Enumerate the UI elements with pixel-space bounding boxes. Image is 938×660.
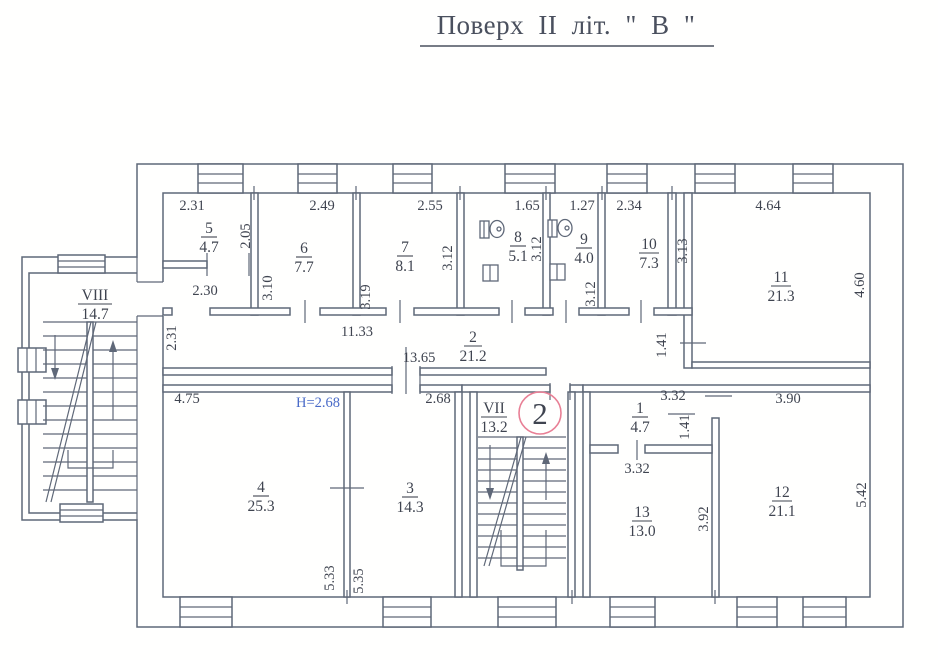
room10-area: 7.3 (639, 255, 659, 272)
room5-number: 5 (205, 220, 213, 237)
dim-room7-width: 2.55 (417, 198, 442, 214)
sink-icon-room8 (483, 265, 498, 281)
floor-plan-sheet: Поверх II літ. " В " (0, 0, 938, 660)
room-label-13: 13 13.0 (628, 504, 655, 540)
dim-corridor-width: 1.41 (654, 332, 670, 357)
sink-icon-room9 (550, 264, 565, 280)
room-label-12: 12 21.1 (768, 484, 795, 520)
stair-vii-area: 13.2 (480, 419, 507, 436)
room-label-corridor-2: 2 21.2 (459, 329, 486, 365)
dim-room13-width: 3.32 (624, 461, 649, 477)
dim-room4-depth: 5.33 (322, 565, 338, 590)
dim-room13-depth: 3.92 (696, 506, 712, 531)
room1-number: 1 (636, 400, 644, 417)
room10-number: 10 (641, 236, 657, 253)
room7-area: 8.1 (395, 258, 414, 275)
room-label-3: 3 14.3 (396, 480, 423, 516)
unit-marker-number: 2 (532, 396, 548, 431)
dim-room10-width: 2.34 (616, 198, 642, 214)
dim-room11-width: 4.64 (755, 198, 781, 214)
dim-lobby-width: 2.30 (192, 283, 217, 299)
room-label-9: 9 4.0 (574, 231, 594, 267)
dim-room3-depth: 5.35 (351, 568, 367, 593)
stairwell-vii (478, 437, 566, 570)
stair-viii-down-arrow (51, 335, 59, 380)
stair-vii-number: VII (483, 400, 505, 417)
room-label-5: 5 4.7 (199, 220, 219, 256)
room12-number: 12 (774, 484, 790, 501)
dim-room4-width: 4.75 (174, 391, 199, 407)
room-label-11: 11 21.3 (767, 269, 794, 305)
toilet-icon-room8 (480, 221, 504, 239)
room6-number: 6 (300, 240, 308, 257)
room-label-8: 8 5.1 (508, 229, 527, 265)
ceiling-height-note: H=2.68 (296, 395, 340, 411)
dim-room9-width: 1.27 (569, 198, 594, 214)
dim-room3-width: 2.68 (425, 391, 450, 407)
dim-room7-depth-right: 3.12 (440, 245, 456, 270)
room12-area: 21.1 (768, 503, 795, 520)
dim-room12-depth: 5.42 (854, 482, 870, 507)
dim-lobby-depth: 2.31 (164, 325, 180, 350)
dim-room7-depth-left: 3.19 (358, 284, 374, 309)
page-title: Поверх II літ. " В " (437, 10, 696, 40)
room8-number: 8 (514, 229, 522, 246)
room-label-viii: VIII 14.7 (78, 287, 112, 323)
stair-viii-up-arrow (109, 340, 117, 420)
room-label-6: 6 7.7 (294, 240, 314, 276)
room5-area: 4.7 (199, 239, 219, 256)
toilet-icon-room9 (548, 220, 572, 238)
dim-corridor-length: 13.65 (403, 350, 436, 366)
room11-number: 11 (774, 269, 789, 286)
dim-room8-depth: 3.12 (529, 236, 545, 261)
stairwell-viii (43, 322, 137, 502)
dim-room1-width: 3.32 (660, 388, 685, 404)
room6-area: 7.7 (294, 259, 314, 276)
dim-room1-depth: 1.41 (677, 414, 693, 439)
room-label-4: 4 25.3 (247, 479, 274, 515)
dim-room6-width: 2.49 (309, 198, 334, 214)
dim-room6-depth: 3.10 (260, 275, 276, 300)
room9-number: 9 (580, 231, 588, 248)
unit-marker: 2 (519, 392, 561, 434)
floor-plan-drawing: Поверх II літ. " В " (0, 0, 938, 660)
room13-area: 13.0 (628, 523, 655, 540)
stair-viii-number: VIII (82, 287, 109, 304)
room8-area: 5.1 (508, 248, 527, 265)
dim-room5-width: 2.31 (179, 198, 204, 214)
dim-room9-depth: 3.12 (583, 281, 599, 306)
windows-bottom-wall (180, 597, 846, 627)
dim-upper-span: 11.33 (341, 324, 373, 340)
dim-room12-width: 3.90 (775, 391, 800, 407)
windows-top-wall (198, 164, 833, 193)
room13-number: 13 (634, 504, 650, 521)
stair-viii-area: 14.7 (81, 306, 108, 323)
room-label-7: 7 8.1 (395, 239, 414, 275)
room-label-vii: VII 13.2 (480, 400, 507, 436)
upper-room-partitions (163, 193, 692, 368)
dim-room10-depth: 3.13 (675, 238, 691, 263)
room3-number: 3 (406, 480, 414, 497)
dim-room8-width: 1.65 (514, 198, 539, 214)
corridor-area: 21.2 (459, 348, 486, 365)
room-label-10: 10 7.3 (639, 236, 659, 272)
room1-area: 4.7 (630, 419, 650, 436)
plan-title: Поверх II літ. " В " (420, 10, 714, 46)
room4-area: 25.3 (247, 498, 274, 515)
dim-room11-depth: 4.60 (852, 272, 868, 297)
room11-area: 21.3 (767, 288, 794, 305)
dim-room5-depth: 2.05 (238, 223, 254, 248)
room4-number: 4 (257, 479, 265, 496)
room3-area: 14.3 (396, 499, 423, 516)
room9-area: 4.0 (574, 250, 594, 267)
corridor-number: 2 (469, 329, 477, 346)
room7-number: 7 (401, 239, 409, 256)
room-label-1: 1 4.7 (630, 400, 650, 436)
